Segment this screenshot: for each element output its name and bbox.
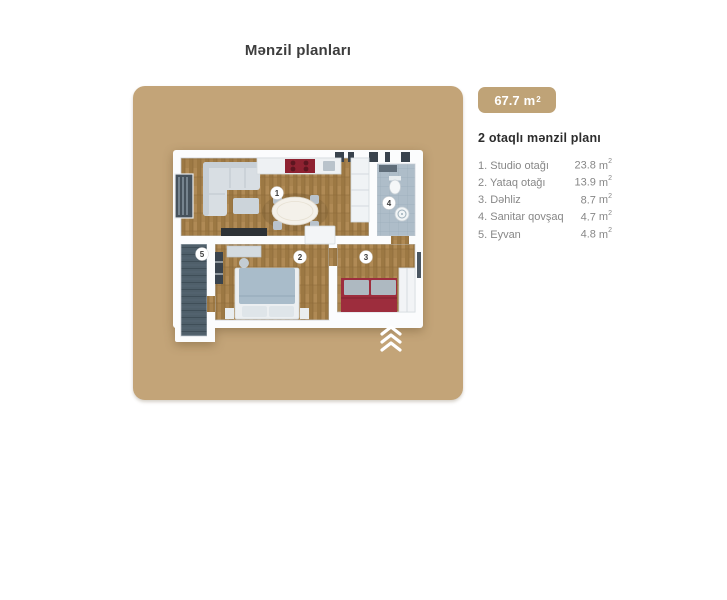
svg-text:2: 2 bbox=[298, 253, 303, 262]
up-chevrons-icon bbox=[379, 324, 403, 354]
svg-text:4: 4 bbox=[387, 199, 392, 208]
svg-text:1: 1 bbox=[275, 189, 280, 198]
area-value: 67.7 bbox=[494, 93, 519, 108]
legend-row-hallway: 3. Dəhliz 8.7m2 bbox=[478, 191, 612, 208]
legend-value: 23.8m2 bbox=[575, 156, 613, 173]
legend-row-bedroom: 2. Yataq otağı 13.9m2 bbox=[478, 173, 612, 190]
legend-row-balcony: 5. Eyvan 4.8m2 bbox=[478, 225, 612, 242]
dining-table bbox=[262, 193, 328, 231]
legend-value: 4.7m2 bbox=[581, 208, 612, 225]
room-bath-floor bbox=[377, 164, 415, 236]
legend-label: 2. Yataq otağı bbox=[478, 176, 545, 191]
room-badge-3: 3 bbox=[360, 251, 373, 264]
room-badge-2: 2 bbox=[294, 251, 307, 264]
tv-console bbox=[221, 228, 267, 236]
floor-plan-image: 1 2 3 4 5 bbox=[173, 150, 423, 342]
room-badge-1: 1 bbox=[271, 187, 284, 200]
legend-row-bathroom: 4. Sanitar qovşaq 4.7m2 bbox=[478, 208, 612, 225]
legend-value: 13.9m2 bbox=[575, 173, 613, 190]
page-title: Mənzil planları bbox=[133, 42, 463, 59]
svg-text:5: 5 bbox=[200, 250, 205, 259]
legend-label: 1. Studio otağı bbox=[478, 159, 549, 174]
room-legend: 1. Studio otağı 23.8m2 2. Yataq otağı 13… bbox=[478, 156, 612, 242]
legend-label: 4. Sanitar qovşaq bbox=[478, 210, 564, 225]
legend-label: 5. Eyvan bbox=[478, 228, 521, 243]
legend-heading: 2 otaqlı mənzil planı bbox=[478, 131, 601, 145]
legend-value: 4.8m2 bbox=[581, 225, 612, 242]
room-badge-5: 5 bbox=[196, 248, 209, 261]
window-icon bbox=[175, 174, 193, 218]
island-cabinet bbox=[305, 226, 335, 244]
legend-row-studio: 1. Studio otağı 23.8m2 bbox=[478, 156, 612, 173]
svg-text:3: 3 bbox=[364, 253, 369, 262]
floor-plan-card[interactable]: 1 2 3 4 5 bbox=[133, 86, 463, 400]
area-badge: 67.7m2 bbox=[478, 87, 556, 113]
legend-label: 3. Dəhliz bbox=[478, 193, 521, 208]
room-badge-4: 4 bbox=[383, 197, 396, 210]
page: Mənzil planları bbox=[0, 0, 727, 600]
legend-value: 8.7m2 bbox=[581, 191, 612, 208]
